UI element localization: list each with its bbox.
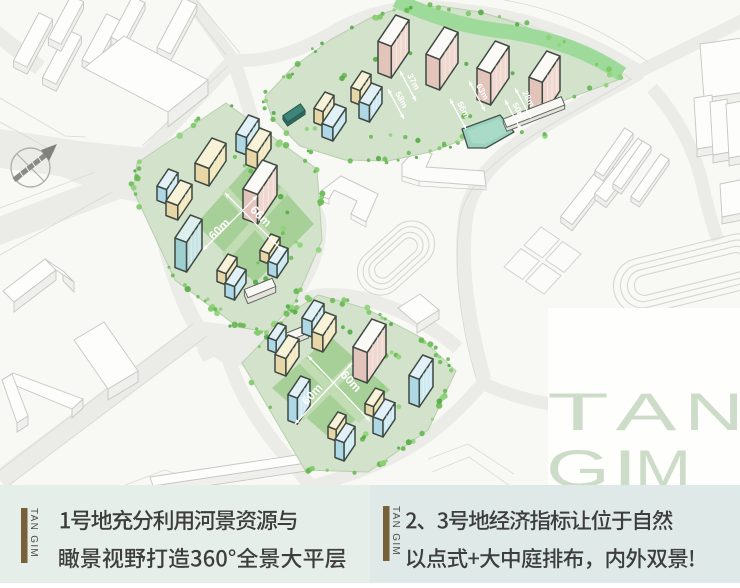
svg-text:T: T	[547, 383, 609, 442]
svg-text:TAN GIM: TAN GIM	[390, 506, 401, 556]
svg-text:TAN GIM: TAN GIM	[28, 508, 39, 558]
svg-text:N: N	[684, 382, 740, 442]
svg-text:A: A	[616, 382, 677, 441]
